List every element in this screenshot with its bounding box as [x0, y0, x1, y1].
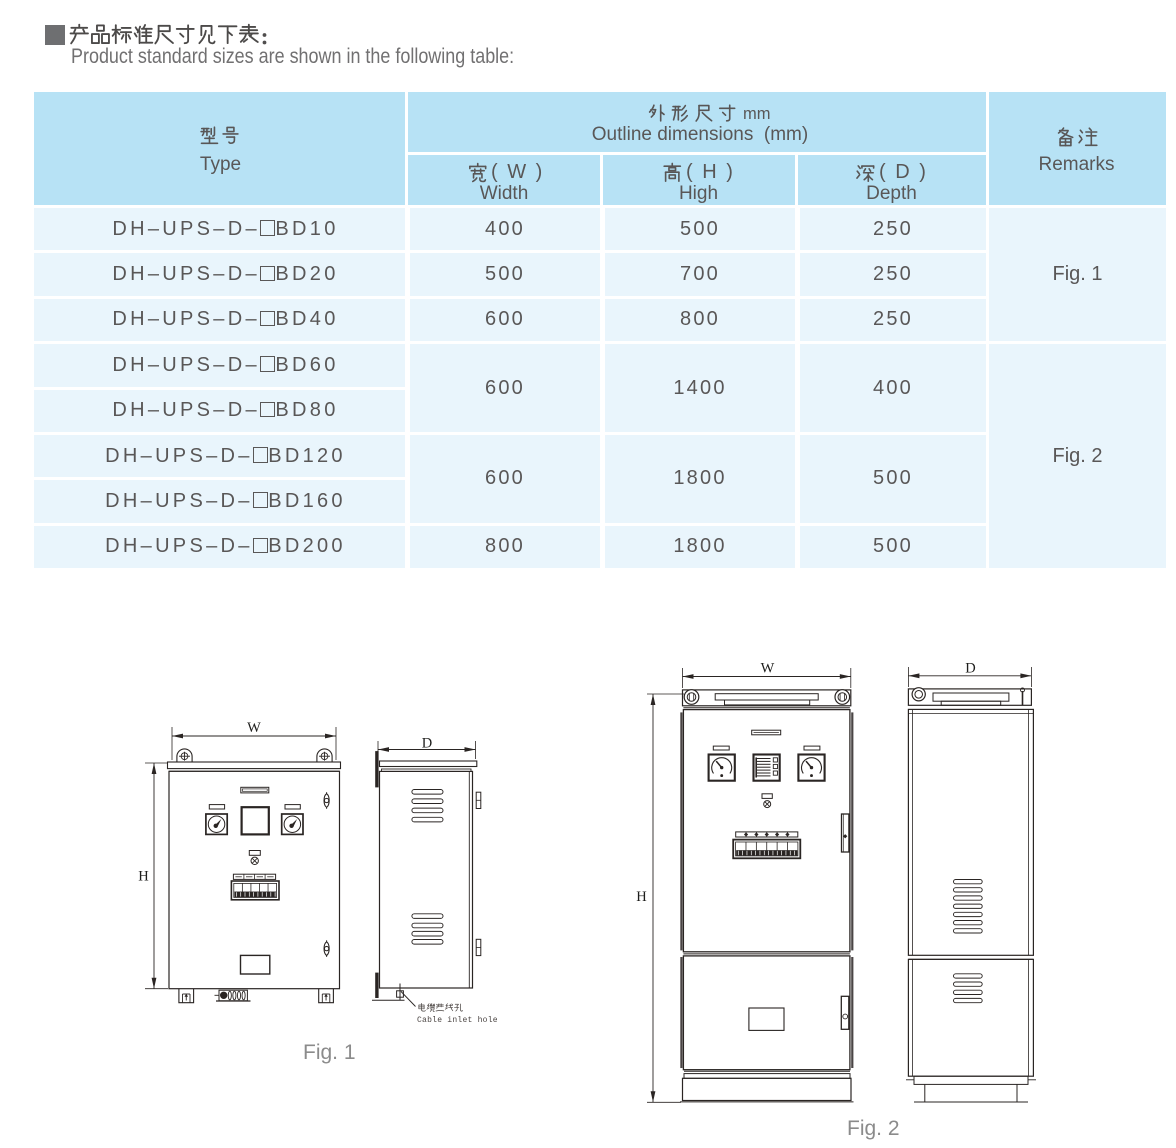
svg-text:W: W	[247, 720, 261, 736]
svg-text:H: H	[138, 869, 149, 885]
svg-text:D: D	[422, 736, 432, 752]
svg-text:H: H	[636, 889, 647, 905]
svg-text:D: D	[965, 661, 975, 677]
svg-text:W: W	[761, 661, 775, 677]
